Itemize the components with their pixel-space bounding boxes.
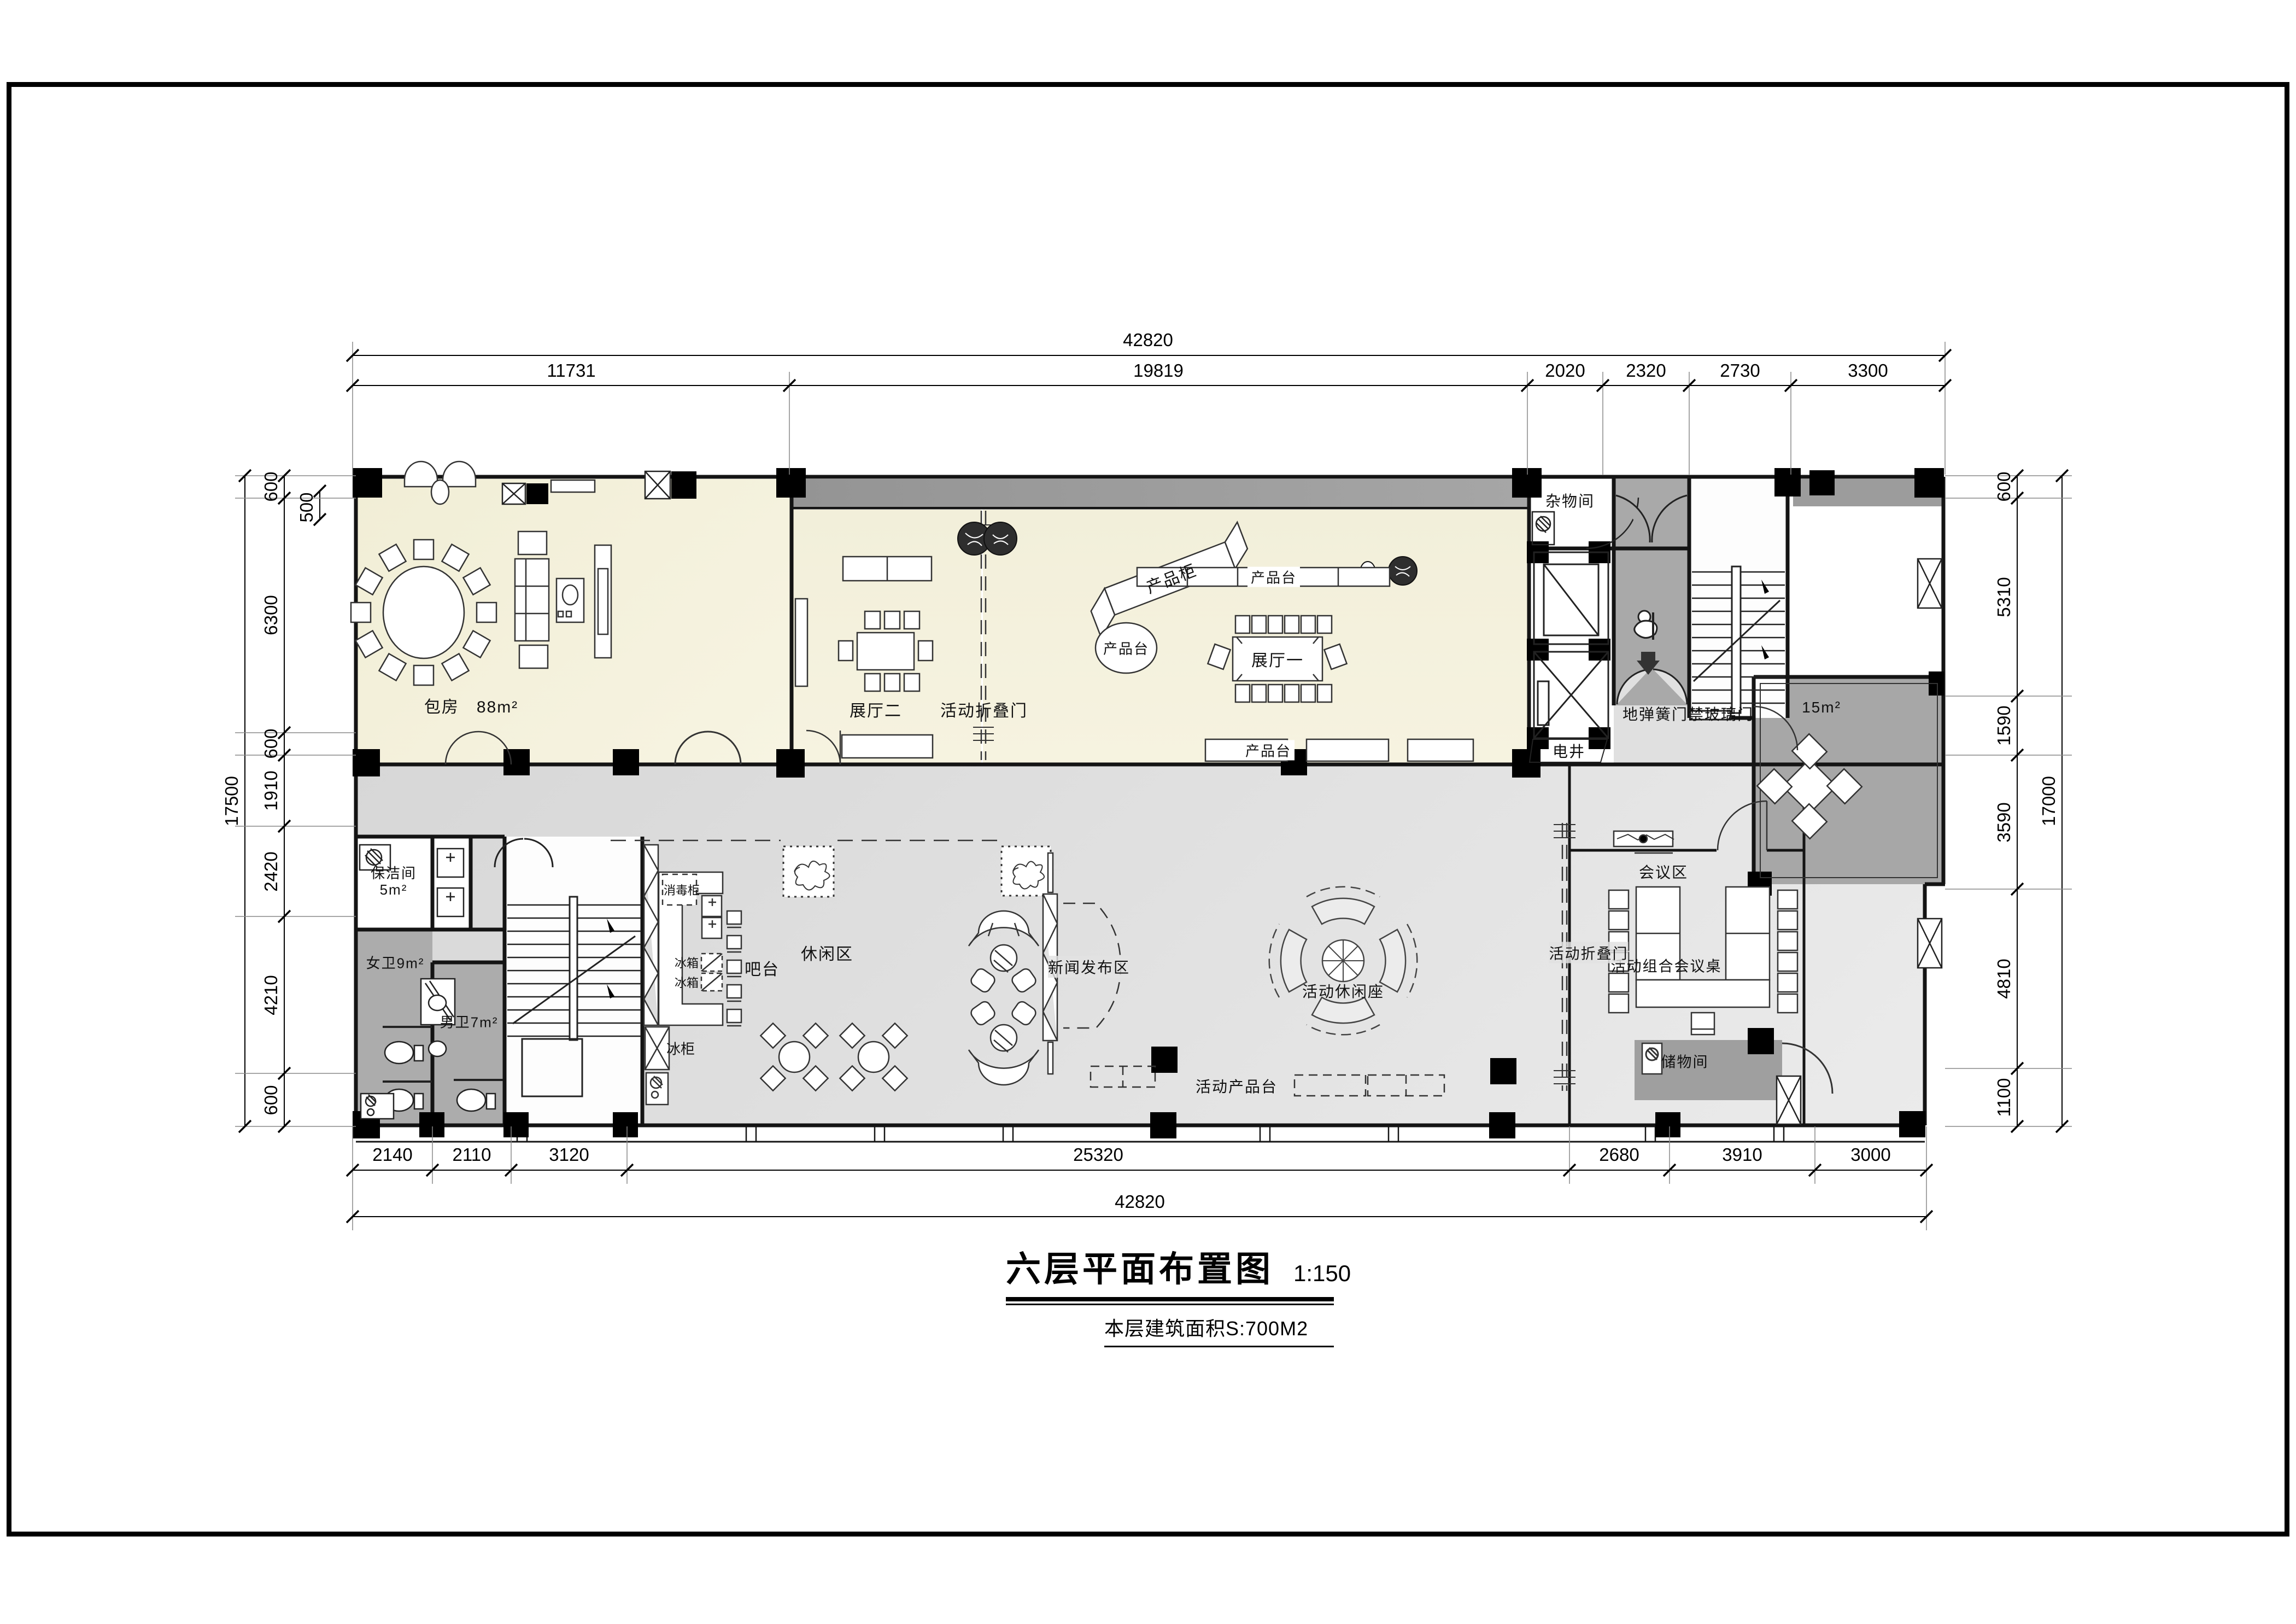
- label-huodong-xiuxianzuo: 活动休闲座: [1302, 980, 1384, 1002]
- label-folding-door-lower: 活动折叠门: [1549, 942, 1629, 963]
- dim-bottom-total: 42820: [1115, 1191, 1165, 1212]
- dim-left-seg: 6300: [261, 595, 282, 635]
- label-glass-door: 地弹簧门禁玻璃门: [1623, 703, 1754, 725]
- room-label-zhanting2: 展厅二: [850, 697, 902, 721]
- baofang-furniture: [351, 462, 611, 764]
- lobby-corridor: [1616, 495, 1687, 704]
- dim-left-seg: 500: [296, 492, 317, 522]
- dim-bottom-seg: 2110: [453, 1144, 491, 1165]
- label-xiaodugui: 消毒柜: [664, 881, 700, 898]
- drawing-title: 六层平面布置图: [1006, 1241, 1274, 1292]
- room-label-chuwujian: 储物间: [1661, 1050, 1709, 1072]
- dim-top-seg: 2730: [1720, 360, 1760, 381]
- dim-bottom-seg: 2140: [372, 1144, 412, 1165]
- title-underline-2: [1006, 1304, 1334, 1305]
- room-label-zhanting1: 展厅一: [1251, 647, 1304, 671]
- dim-right-seg: 4810: [1994, 959, 2014, 998]
- label-huodong-chanpintai: 活动产品台: [1196, 1075, 1278, 1097]
- drawing-scale: 1:150: [1293, 1260, 1351, 1287]
- dim-top-total: 42820: [1123, 330, 1173, 350]
- dim-bottom-seg: 3120: [549, 1144, 589, 1165]
- dim-left-seg: 4210: [261, 975, 282, 1015]
- hall-doors: [611, 732, 1000, 840]
- dim-left-seg: 600: [261, 1085, 282, 1115]
- label-chanpintai-top: 产品台: [1247, 567, 1300, 587]
- label-folding-door-upper: 活动折叠门: [940, 697, 1028, 721]
- staircase-top-right: [1690, 566, 1785, 720]
- plan-linework: [0, 0, 2296, 1624]
- label-xiuxianqu: 休闲区: [801, 940, 853, 965]
- staircase-left: [495, 839, 641, 1096]
- dim-bottom-seg: 2680: [1599, 1144, 1639, 1165]
- label-batai: 吧台: [745, 956, 780, 980]
- label-binggui: 冰柜: [666, 1038, 695, 1059]
- dim-left-total: 17500: [221, 776, 242, 826]
- dim-left-seg: 2420: [261, 851, 282, 891]
- dim-right-seg: 1590: [1994, 705, 2014, 745]
- title-underline: [1006, 1297, 1334, 1301]
- dim-left-seg: 1910: [261, 770, 282, 810]
- dim-right-total: 17000: [2039, 776, 2059, 826]
- label-chanpintai-stand: 产品台: [1103, 638, 1149, 658]
- room-label-zawujian: 杂物间: [1545, 489, 1595, 511]
- dim-left-seg: 600: [261, 471, 282, 501]
- dim-right-seg: 5310: [1994, 577, 2014, 617]
- floor-area-note: 本层建筑面积S:700M2: [1104, 1313, 1351, 1341]
- zhanting2-furniture: [795, 557, 933, 764]
- label-bingxiang-2: 冰箱: [675, 973, 699, 991]
- area-note-underline: [1104, 1346, 1334, 1347]
- label-huiyiqu: 会议区: [1639, 861, 1688, 883]
- dim-right-seg: 1100: [1994, 1078, 2014, 1117]
- dim-top-seg: 2320: [1626, 360, 1666, 381]
- dim-right-seg: 600: [1994, 471, 2014, 501]
- dim-bottom-seg: 3910: [1722, 1144, 1762, 1165]
- room-label-15: 15m²: [1802, 699, 1841, 716]
- label-xinwenfabuqu: 新闻发布区: [1048, 956, 1130, 978]
- room-label-nvwei: 女卫9m²: [366, 953, 425, 973]
- dim-bottom-seg: 25320: [1073, 1144, 1123, 1165]
- dim-right-seg: 3590: [1994, 802, 2014, 842]
- label-bingxiang-1: 冰箱: [675, 954, 699, 971]
- room-label-dianjing: 电井: [1553, 740, 1585, 762]
- dim-bottom-seg: 3000: [1850, 1144, 1890, 1165]
- dim-left-seg: 600: [261, 728, 282, 758]
- dim-top-seg: 3300: [1848, 360, 1888, 381]
- title-block: 六层平面布置图 1:150 本层建筑面积S:700M2: [1006, 1241, 1351, 1347]
- activity-leisure-circle: [1269, 887, 1418, 1035]
- drawing-sheet: 42820 11731 19819 2020 2320 2730 3300 21…: [0, 0, 2296, 1624]
- room15-furniture: [1754, 684, 1937, 878]
- dim-top-seg: 11731: [547, 360, 595, 381]
- dim-top-seg: 2020: [1545, 360, 1585, 381]
- room-label-baojiejian: 保洁间5m²: [371, 865, 417, 898]
- label-chanpintai-bottom: 产品台: [1242, 740, 1295, 761]
- leisure-tables: [760, 846, 907, 1091]
- dim-top-seg: 19819: [1133, 360, 1184, 381]
- room-label-nanwei: 男卫7m²: [440, 1012, 499, 1032]
- zhanting1-furniture: [1137, 568, 1473, 761]
- room-label-baofang: 包房 88m²: [424, 693, 518, 717]
